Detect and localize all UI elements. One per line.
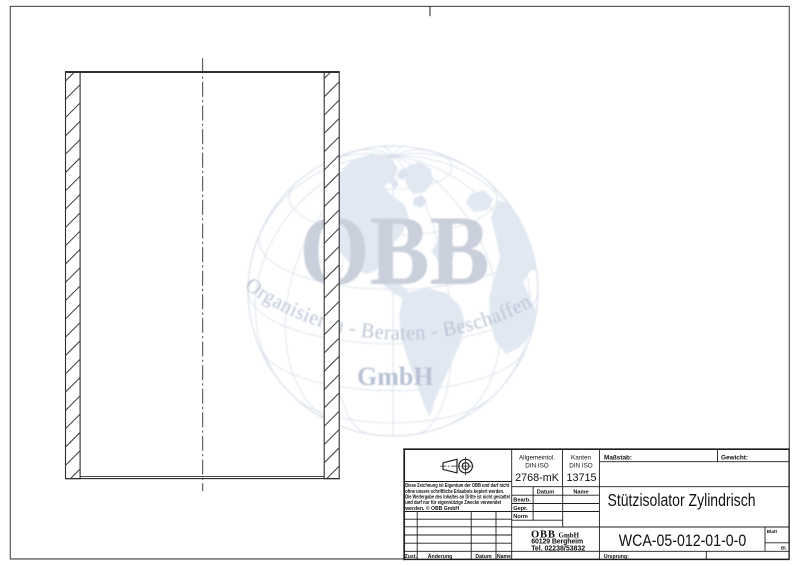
svg-text:WCA-05-012-01-0-0: WCA-05-012-01-0-0 — [619, 531, 747, 550]
svg-text:2768-mK: 2768-mK — [515, 472, 560, 484]
svg-text:Maßstab:: Maßstab: — [604, 455, 632, 462]
svg-text:Bl.: Bl. — [781, 545, 787, 550]
svg-text:Bearb.: Bearb. — [513, 498, 531, 504]
svg-text:GmbH: GmbH — [357, 362, 434, 391]
svg-text:Tel. 02238/53832: Tel. 02238/53832 — [531, 545, 585, 552]
svg-text:Datum: Datum — [537, 490, 554, 496]
svg-text:werden. © OBB GmbH: werden. © OBB GmbH — [404, 505, 459, 512]
svg-text:Stützisolator Zylindrisch: Stützisolator Zylindrisch — [608, 490, 756, 510]
svg-text:Blatt: Blatt — [767, 529, 778, 534]
svg-text:Name: Name — [573, 490, 588, 496]
svg-text:Gepr.: Gepr. — [513, 506, 528, 512]
svg-text:13715: 13715 — [566, 472, 596, 484]
svg-text:Datum: Datum — [475, 554, 492, 560]
svg-text:Ursprung:: Ursprung: — [604, 554, 629, 560]
svg-text:DIN ISO: DIN ISO — [569, 462, 593, 469]
svg-text:Zust.: Zust. — [405, 554, 418, 560]
svg-text:Gewicht:: Gewicht: — [721, 455, 748, 462]
svg-text:Name: Name — [497, 554, 511, 560]
svg-text:Norm: Norm — [513, 514, 528, 520]
svg-text:Änderung: Änderung — [428, 553, 453, 560]
svg-text:DIN ISO: DIN ISO — [525, 462, 549, 469]
svg-text:Allgemeintol.: Allgemeintol. — [519, 454, 555, 461]
svg-text:Kanten: Kanten — [571, 454, 591, 461]
